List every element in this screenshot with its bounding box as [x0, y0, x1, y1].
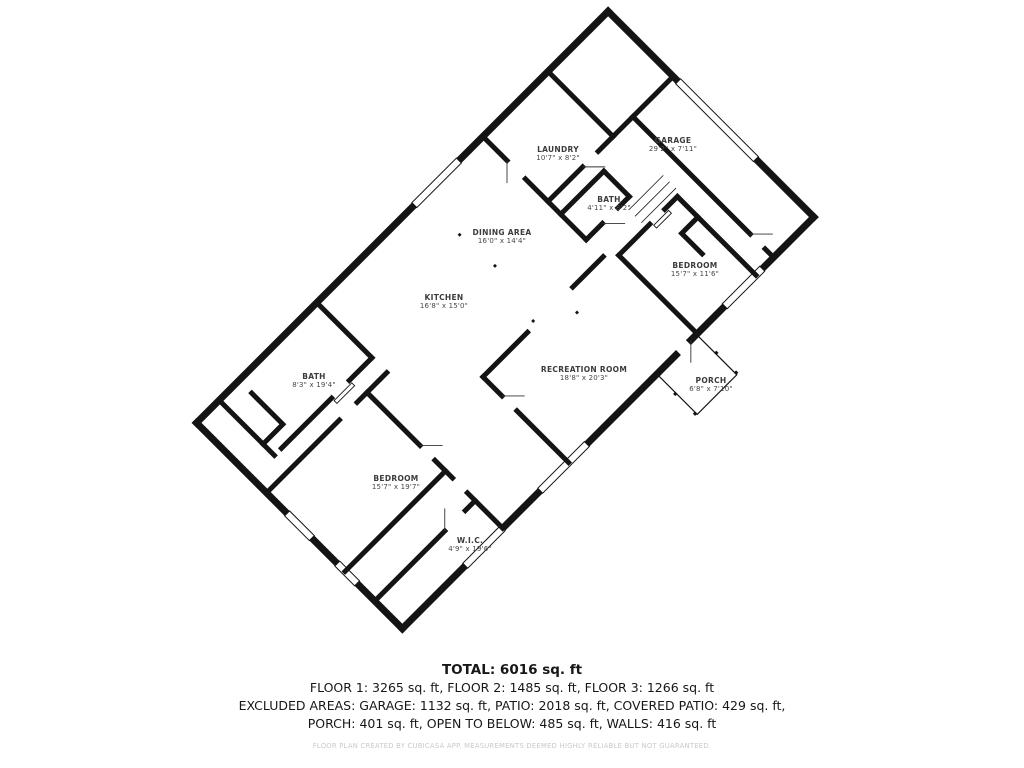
- exterior-walls: [197, 11, 814, 628]
- excluded-areas-line2: PORCH: 401 sq. ft, OPEN TO BELOW: 485 sq…: [0, 715, 1024, 733]
- floor-plan: LAUNDRY 10'7" x 8'2" GARAGE 29'2" x 7'11…: [0, 0, 1024, 768]
- floor-plan-drawing: [0, 0, 1024, 768]
- column-dots: [431, 213, 579, 361]
- interior-walls: [197, 11, 814, 628]
- excluded-areas-line1: EXCLUDED AREAS: GARAGE: 1132 sq. ft, PAT…: [0, 697, 1024, 715]
- door-swings: [291, 64, 797, 570]
- disclaimer-text: FLOOR PLAN CREATED BY CUBICASA APP. MEAS…: [0, 742, 1024, 750]
- total-area: TOTAL: 6016 sq. ft: [0, 661, 1024, 679]
- floor-areas: FLOOR 1: 3265 sq. ft, FLOOR 2: 1485 sq. …: [0, 679, 1024, 697]
- area-summary: TOTAL: 6016 sq. ft FLOOR 1: 3265 sq. ft,…: [0, 661, 1024, 733]
- porch-outline: [655, 333, 739, 417]
- windows: [192, 6, 819, 633]
